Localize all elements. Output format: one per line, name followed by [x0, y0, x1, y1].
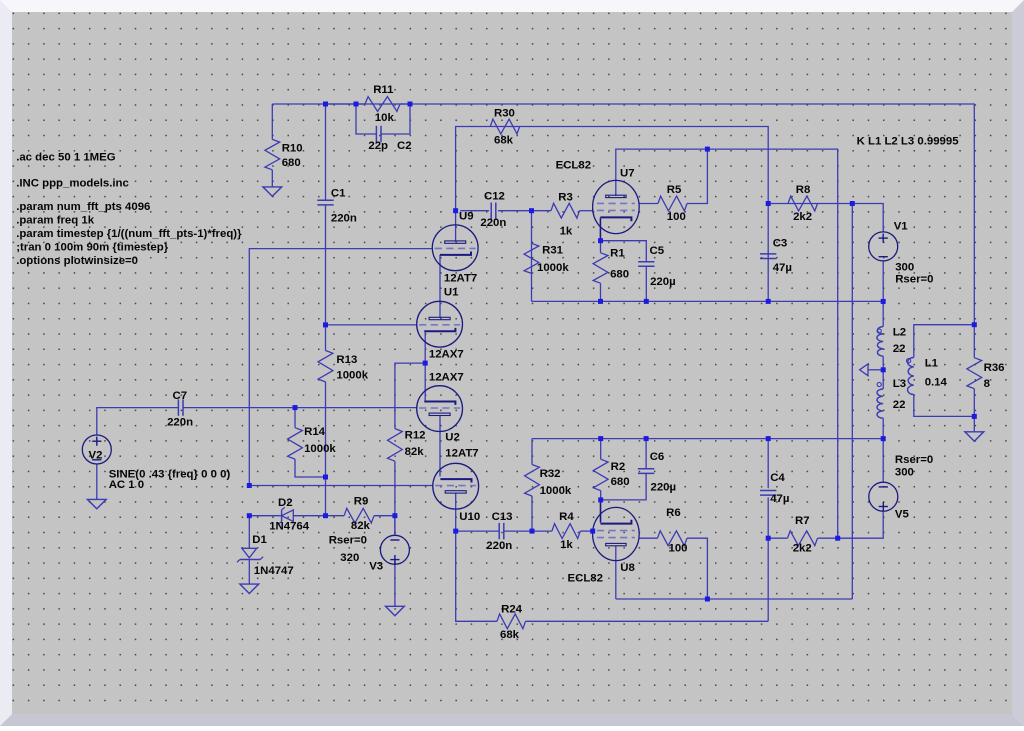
svg-text:;tran 0 100m 90m {timestep}: ;tran 0 100m 90m {timestep}	[16, 241, 169, 253]
svg-text:Rser=0: Rser=0	[895, 454, 933, 466]
svg-text:12AX7: 12AX7	[429, 371, 464, 383]
svg-text:R2: R2	[611, 461, 626, 473]
svg-text:2k2: 2k2	[793, 543, 812, 555]
svg-text:R3: R3	[558, 191, 573, 203]
svg-text:.param freq 1k: .param freq 1k	[16, 215, 95, 227]
svg-text:V1: V1	[894, 220, 909, 232]
svg-text:R11: R11	[373, 84, 394, 96]
svg-text:22: 22	[893, 399, 906, 411]
svg-text:V2: V2	[89, 450, 103, 462]
svg-text:1N4764: 1N4764	[269, 521, 310, 533]
svg-text:C5: C5	[650, 245, 665, 257]
svg-text:C3: C3	[773, 237, 788, 249]
svg-text:1k: 1k	[560, 226, 573, 238]
svg-text:R36: R36	[984, 362, 1005, 374]
svg-text:L3: L3	[893, 378, 906, 390]
svg-text:0.14: 0.14	[925, 377, 948, 389]
svg-text:L1: L1	[925, 358, 939, 370]
svg-text:220n: 220n	[480, 217, 506, 229]
svg-text:.param num_fft_pts 4096: .param num_fft_pts 4096	[16, 201, 150, 213]
svg-text:R6: R6	[666, 507, 681, 519]
svg-text:R10: R10	[282, 142, 303, 154]
svg-text:300: 300	[895, 467, 914, 479]
svg-text:ECL82: ECL82	[556, 160, 591, 172]
svg-text:U7: U7	[620, 167, 635, 179]
svg-text:10k: 10k	[375, 112, 395, 124]
svg-text:300: 300	[895, 262, 914, 274]
svg-text:82k: 82k	[405, 446, 425, 458]
svg-text:47µ: 47µ	[773, 262, 792, 274]
svg-text:R9: R9	[354, 496, 369, 508]
svg-text:R24: R24	[501, 604, 523, 616]
svg-text:U2: U2	[445, 432, 460, 444]
svg-text:12AT7: 12AT7	[444, 273, 477, 285]
svg-text:D1: D1	[252, 534, 267, 546]
svg-text:320: 320	[340, 552, 359, 564]
svg-text:R5: R5	[667, 184, 682, 196]
svg-text:100: 100	[667, 211, 686, 223]
svg-text:2k2: 2k2	[793, 211, 812, 223]
svg-text:68k: 68k	[494, 135, 514, 147]
svg-text:100: 100	[669, 542, 688, 554]
svg-text:U1: U1	[444, 286, 459, 298]
svg-text:U10: U10	[459, 511, 480, 523]
svg-text:C2: C2	[397, 140, 412, 152]
svg-text:ECL82: ECL82	[568, 573, 603, 585]
svg-text:V3: V3	[369, 561, 383, 573]
svg-text:22p: 22p	[368, 140, 388, 152]
svg-text:680: 680	[611, 476, 630, 488]
svg-text:R13: R13	[336, 354, 357, 366]
svg-text:1k: 1k	[560, 539, 573, 551]
svg-text:R1: R1	[610, 248, 625, 260]
svg-text:47µ: 47µ	[770, 493, 789, 505]
svg-text:220n: 220n	[486, 540, 512, 552]
svg-text:R30: R30	[494, 107, 515, 119]
svg-text:12AX7: 12AX7	[429, 348, 464, 360]
svg-text:R14: R14	[304, 426, 326, 438]
svg-text:U9: U9	[459, 211, 474, 223]
svg-text:220n: 220n	[331, 212, 357, 224]
svg-text:R4: R4	[559, 511, 574, 523]
svg-text:680: 680	[282, 157, 301, 169]
svg-text:Rser=0: Rser=0	[329, 535, 367, 547]
svg-text:.INC ppp_models.inc: .INC ppp_models.inc	[16, 178, 129, 190]
svg-text:K L1 L2 L3 0.99995: K L1 L2 L3 0.99995	[857, 136, 960, 148]
svg-text:1N4747: 1N4747	[254, 565, 294, 577]
svg-text:68k: 68k	[500, 629, 520, 641]
svg-text:AC 1 0: AC 1 0	[109, 479, 144, 491]
svg-text:1000k: 1000k	[537, 262, 569, 274]
svg-text:22: 22	[893, 343, 906, 355]
svg-text:R32: R32	[540, 468, 561, 480]
svg-text:1000k: 1000k	[540, 485, 572, 497]
svg-text:R31: R31	[542, 245, 564, 257]
svg-text:220µ: 220µ	[650, 276, 676, 288]
svg-text:1000k: 1000k	[304, 443, 336, 455]
svg-text:220µ: 220µ	[651, 482, 677, 494]
svg-text:.param timestep {1/((num_fft_p: .param timestep {1/((num_fft_pts-1)*freq…	[16, 228, 242, 240]
svg-text:Rser=0: Rser=0	[895, 274, 933, 286]
svg-text:8: 8	[984, 378, 990, 390]
svg-text:220n: 220n	[167, 417, 193, 429]
svg-text:680: 680	[610, 268, 629, 280]
svg-text:C12: C12	[484, 191, 505, 203]
svg-text:L2: L2	[893, 327, 906, 339]
svg-text:12AT7: 12AT7	[445, 447, 478, 459]
svg-text:.options plotwinsize=0: .options plotwinsize=0	[16, 255, 138, 267]
svg-text:C1: C1	[331, 187, 346, 199]
svg-text:V5: V5	[895, 509, 910, 521]
svg-text:R7: R7	[795, 515, 810, 527]
svg-text:C6: C6	[650, 451, 665, 463]
svg-text:D2: D2	[278, 497, 293, 509]
svg-text:C4: C4	[770, 472, 785, 484]
svg-text:R8: R8	[796, 184, 811, 196]
svg-text:1000k: 1000k	[336, 370, 368, 382]
svg-text:.ac dec 50 1 1MEG: .ac dec 50 1 1MEG	[16, 152, 116, 164]
svg-text:C13: C13	[492, 511, 513, 523]
svg-text:82k: 82k	[351, 520, 371, 532]
svg-text:U8: U8	[620, 562, 635, 574]
svg-text:C7: C7	[173, 390, 188, 402]
svg-text:R12: R12	[405, 429, 426, 441]
